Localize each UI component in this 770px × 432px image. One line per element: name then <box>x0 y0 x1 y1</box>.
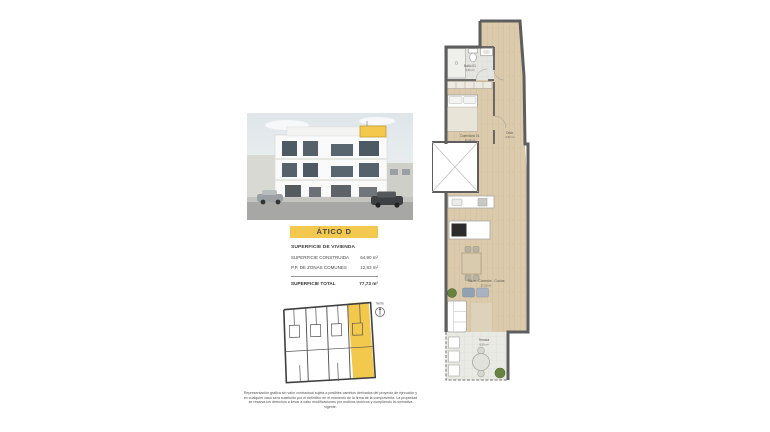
building-render-drawing <box>247 113 413 220</box>
kitchen-island <box>449 221 490 239</box>
wardrobe <box>447 82 492 89</box>
sink <box>481 49 493 56</box>
window <box>282 163 297 177</box>
row-label: SUPERFICIE CONSTRUIDA <box>291 255 349 260</box>
table-row: SUPERFICIE CONSTRUIDA 64,90 m² <box>291 255 378 260</box>
neighbor-window <box>390 169 398 175</box>
window <box>331 144 353 156</box>
room-label-bano: Baño 01 <box>464 64 476 68</box>
room-area-bano: 3,50 m² <box>465 68 474 72</box>
atico-banner: ÁTICO D <box>290 226 378 238</box>
window <box>331 166 353 177</box>
window <box>282 141 297 156</box>
entry-door <box>309 187 321 197</box>
key-plan-drawing: Norte <box>277 298 395 388</box>
plant <box>448 289 457 298</box>
window <box>303 163 318 177</box>
total-value: 77,73 m² <box>359 281 378 286</box>
window <box>359 163 379 177</box>
areas-table-header: SUPERFICIE DE VIVIENDA <box>291 245 378 250</box>
balcony-slab <box>275 179 387 181</box>
table-row: P.P. DE ZONAS COMUNES 12,83 m² <box>291 265 378 270</box>
room-label-distr: Distr. <box>506 131 513 135</box>
key-plan: Norte <box>277 298 395 388</box>
row-label: P.P. DE ZONAS COMUNES <box>291 265 347 270</box>
rug <box>471 303 492 332</box>
room-area-salon: 27,00 m² <box>481 284 492 288</box>
plant <box>495 368 505 378</box>
pouf <box>463 288 475 297</box>
sofa <box>448 301 467 332</box>
room-area-terraza: 8,50 m² <box>479 343 488 347</box>
disclaimer-text: Representación gráfica sin valor contrac… <box>243 391 418 409</box>
window <box>359 141 379 156</box>
terrace-storage <box>449 337 460 376</box>
kitchen-counter <box>448 196 494 208</box>
room-area-distr: 2,50 m² <box>505 135 514 139</box>
areas-table: SUPERFICIE DE VIVIENDA SUPERFICIE CONSTR… <box>291 245 378 286</box>
shower <box>448 49 466 79</box>
north-label: Norte <box>376 302 384 306</box>
highlighted-unit <box>348 302 375 380</box>
room-label-salon: Salón - Comedor - Cocina <box>468 279 505 283</box>
shop-front <box>359 187 377 197</box>
floor-plan: Baño 01 3,50 m² Dormitorio 01 11,00 m² D… <box>432 16 547 388</box>
north-compass: Norte <box>376 302 385 317</box>
row-value: 12,83 m² <box>360 265 378 270</box>
garage-door <box>331 185 351 197</box>
garage-door <box>285 185 301 197</box>
floor-plan-drawing: Baño 01 3,50 m² Dormitorio 01 11,00 m² D… <box>432 16 547 388</box>
penthouse-highlight <box>360 126 386 137</box>
pouf <box>477 288 489 297</box>
communal-core <box>432 142 478 192</box>
toilet <box>469 49 478 62</box>
table-divider <box>291 276 378 277</box>
balcony-slab <box>275 158 387 160</box>
bed <box>448 95 478 131</box>
total-row: SUPERFICIE TOTAL 77,73 m² <box>291 281 378 286</box>
room-label-terraza: Terraza <box>479 338 490 342</box>
row-value: 64,90 m² <box>360 255 378 260</box>
building-render <box>247 113 413 220</box>
key-plan-floor <box>284 302 376 383</box>
total-label: SUPERFICIE TOTAL <box>291 281 336 286</box>
window <box>303 141 318 156</box>
room-label-dormitorio: Dormitorio 01 <box>460 134 479 138</box>
cloud <box>359 117 395 125</box>
neighbor-window <box>402 169 410 175</box>
room-area-dormitorio: 11,00 m² <box>465 138 476 142</box>
